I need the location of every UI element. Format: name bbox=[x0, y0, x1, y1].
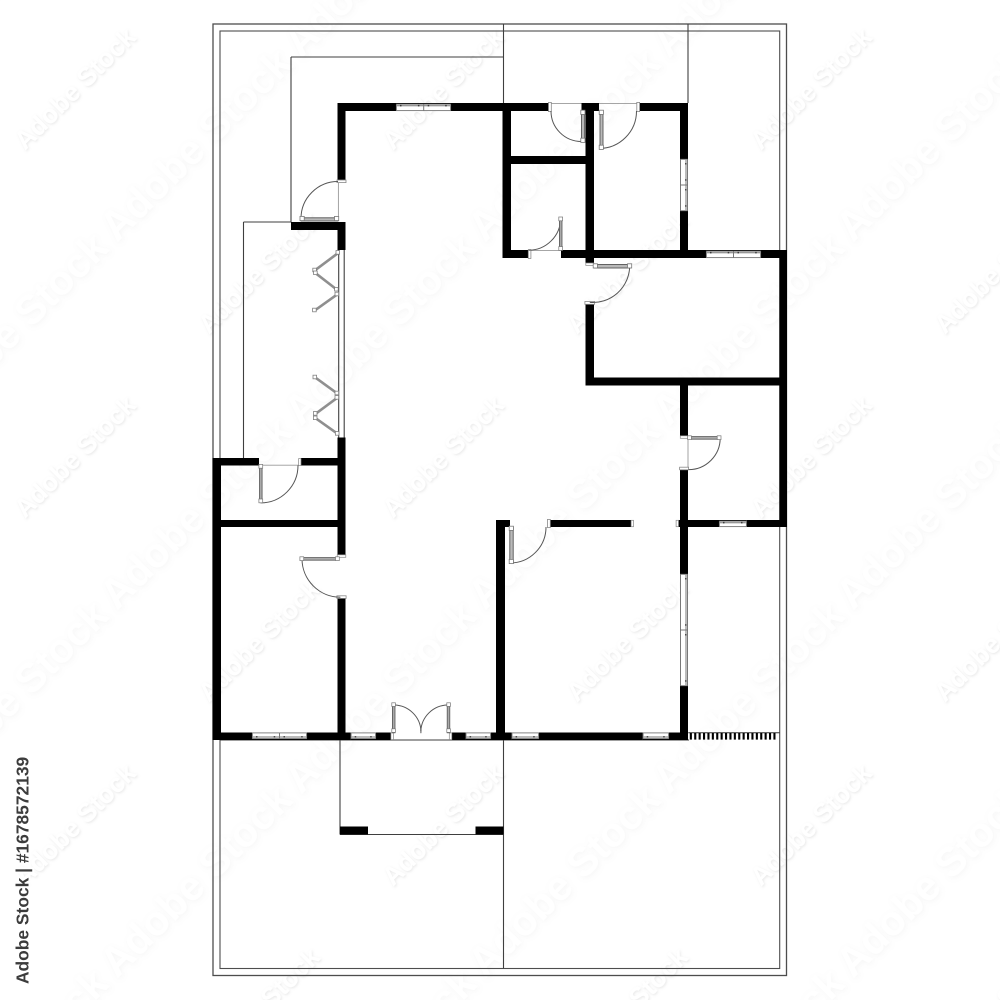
svg-text:Adobe Stock | #1678572139: Adobe Stock | #1678572139 bbox=[13, 756, 33, 984]
